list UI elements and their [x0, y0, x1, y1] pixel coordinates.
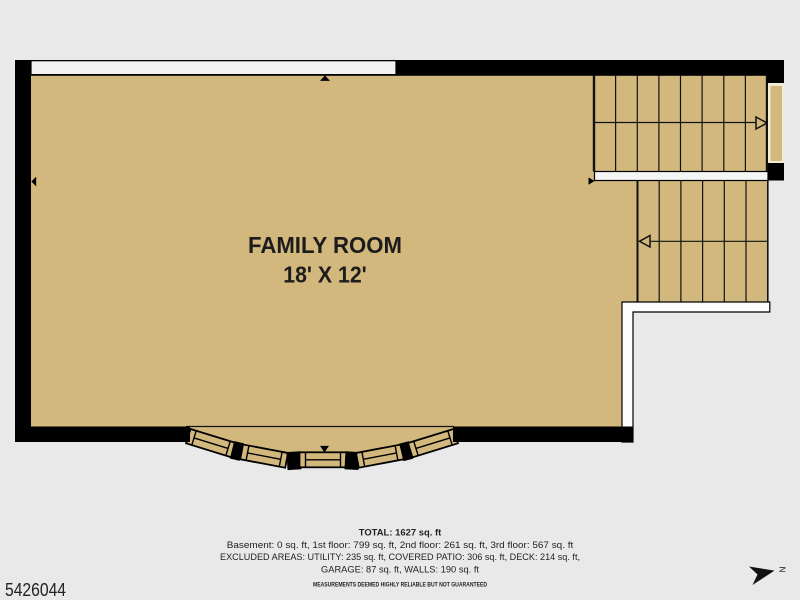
svg-text:MEASUREMENTS DEEMED HIGHLY REL: MEASUREMENTS DEEMED HIGHLY RELIABLE BUT … — [313, 582, 487, 589]
svg-text:FAMILY ROOM: FAMILY ROOM — [248, 232, 402, 258]
svg-text:18' X 12': 18' X 12' — [283, 262, 367, 288]
svg-text:TOTAL: 1627 sq. ft: TOTAL: 1627 sq. ft — [359, 528, 442, 539]
svg-text:Basement: 0 sq. ft, 1st floor:: Basement: 0 sq. ft, 1st floor: 799 sq. f… — [227, 540, 574, 551]
svg-text:EXCLUDED AREAS: UTILITY: 235 s: EXCLUDED AREAS: UTILITY: 235 sq. ft, COV… — [220, 552, 580, 563]
svg-text:N: N — [778, 567, 787, 573]
svg-text:5426044: 5426044 — [5, 580, 66, 600]
svg-text:GARAGE: 87 sq. ft, WALLS: 190: GARAGE: 87 sq. ft, WALLS: 190 sq. ft — [321, 564, 479, 575]
